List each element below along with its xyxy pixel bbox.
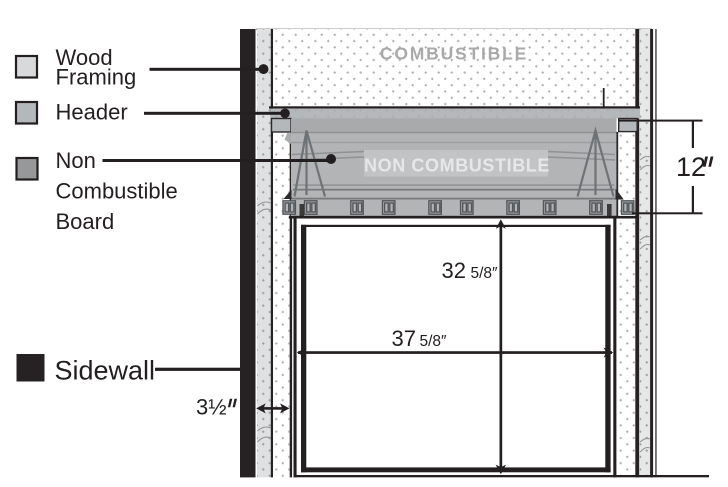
svg-text:5/8″: 5/8″ [420,333,448,350]
svg-text:Header: Header [56,100,128,125]
svg-text:3½: 3½ [196,395,227,420]
svg-text:Framing: Framing [56,64,137,89]
svg-text:32: 32 [442,258,466,283]
svg-text:37: 37 [392,326,416,351]
svg-text:Board: Board [56,209,115,234]
svg-text:COMBUSTIBLE: COMBUSTIBLE [380,44,528,64]
svg-text:5/8″: 5/8″ [471,265,499,282]
svg-text:12: 12 [676,152,706,182]
svg-text:Combustible: Combustible [56,179,178,204]
svg-text:NON COMBUSTIBLE: NON COMBUSTIBLE [364,156,550,176]
svg-text:Sidewall: Sidewall [55,356,156,386]
svg-text:Non: Non [56,148,96,173]
